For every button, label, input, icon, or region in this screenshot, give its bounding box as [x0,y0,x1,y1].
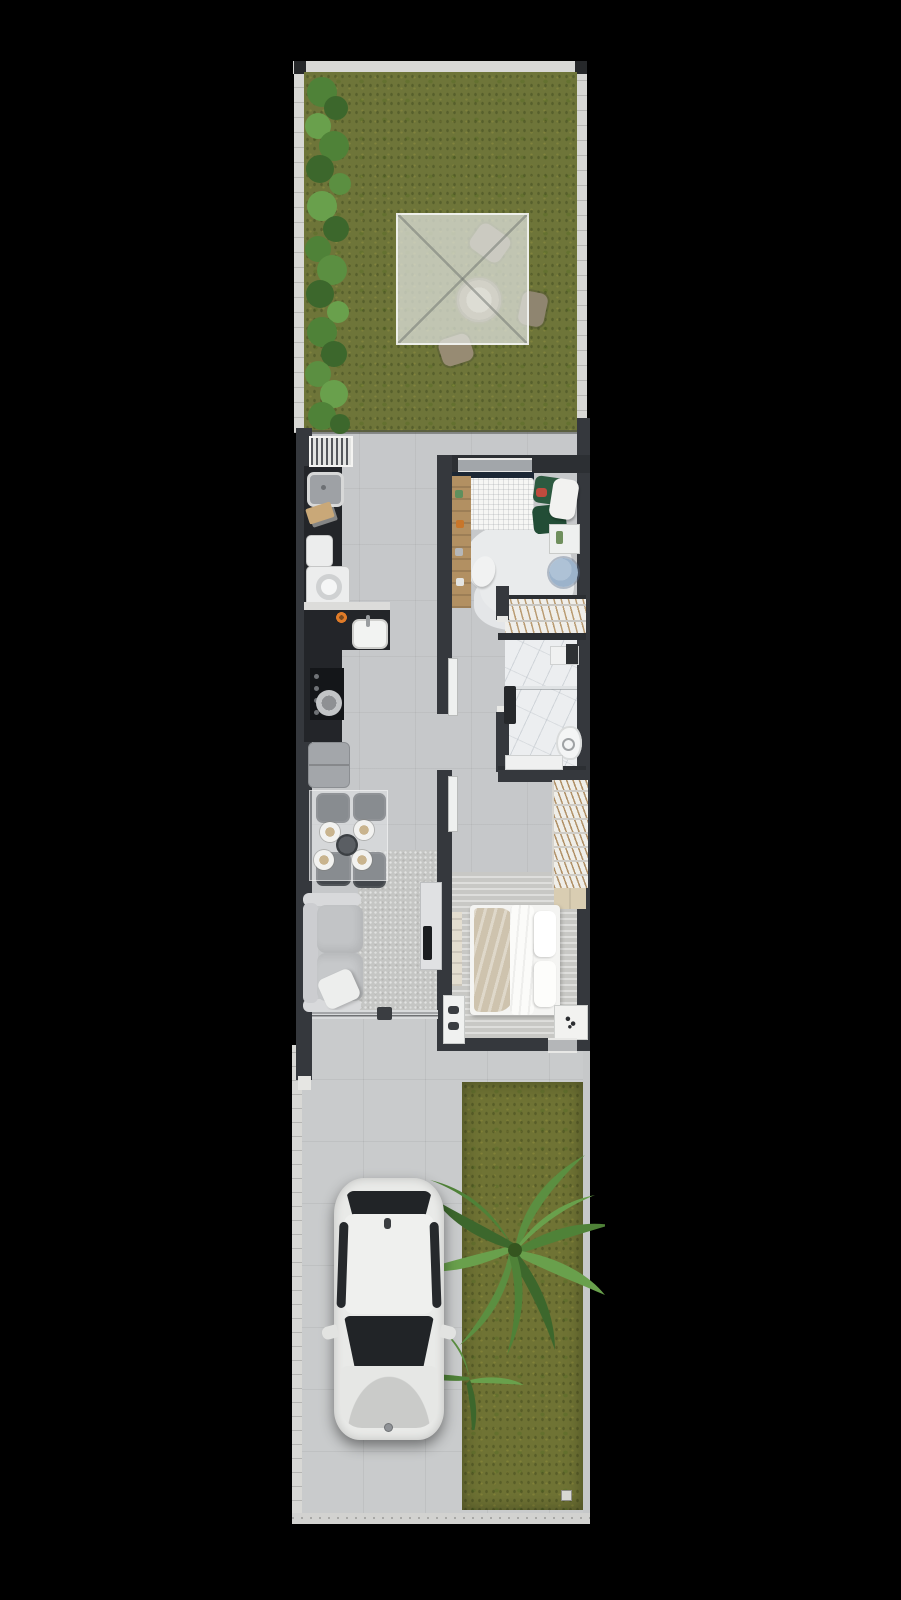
sliding-glass-door [312,1010,438,1019]
shoes [448,1022,459,1030]
single-bed [468,478,534,530]
place-setting [354,820,374,840]
red-accent-pillow [536,488,547,497]
sofa-cushion [317,905,363,953]
car-roof [344,1214,434,1314]
center-bowl [336,834,358,856]
glass-shower-partition [509,686,577,689]
bedroom1-window [458,458,532,473]
sofa [303,893,364,1012]
car-windshield [344,1316,434,1368]
blue-pouf [549,558,578,587]
garden-leaf-plants [296,74,368,434]
floor-plan-canvas [0,0,901,1600]
desk-paper [456,578,464,586]
shoe-rack [443,995,465,1044]
car-antenna [384,1218,391,1229]
wall-end-cap [497,616,508,622]
bedroom2-wall-shelf [452,912,462,986]
side-tray [549,524,580,554]
bedroom2-door [448,776,458,832]
place-setting [352,850,372,870]
front-fence [292,1045,302,1515]
nightstand [554,1005,588,1040]
double-bed [470,905,560,1015]
laundry-tank [306,535,333,567]
sliding-door-handle [377,1007,392,1020]
desk-plant [455,490,463,498]
bed-pillow [534,911,556,957]
kitchen-backsplash-wall [304,602,390,610]
lawn-drain-plate [561,1490,572,1501]
wardrobe [552,780,588,888]
desk-books [456,520,464,528]
shower-fixture [566,644,578,664]
vanity-shelf [505,755,563,770]
frying-pan [316,690,342,716]
place-setting [314,850,334,870]
bedroom2-window [548,1038,577,1053]
bed-sheet [510,905,534,1015]
kitchen-sink [352,619,388,649]
bathroom-door [504,686,516,724]
bed-blanket [474,908,514,1012]
white-car [330,1178,448,1442]
tv [423,926,432,960]
car-emblem [385,1424,392,1431]
sofa-back [303,903,318,1003]
shoes [448,1006,459,1014]
bedroom1-door [448,658,458,716]
barbecue-grill [309,436,353,467]
refrigerator [308,742,350,788]
counter-flower [336,612,347,623]
bathroom-top-wall [498,633,586,640]
sidewalk [292,1513,590,1524]
hanging-closet [505,599,586,636]
backyard-right-wall [576,61,587,426]
desk-object [455,548,463,556]
car-hood [340,1366,438,1428]
pergola-canopy [396,213,529,345]
bed-pillow [534,961,556,1007]
wall-end-cap [298,1076,311,1090]
bathroom-left-wall [496,586,509,620]
